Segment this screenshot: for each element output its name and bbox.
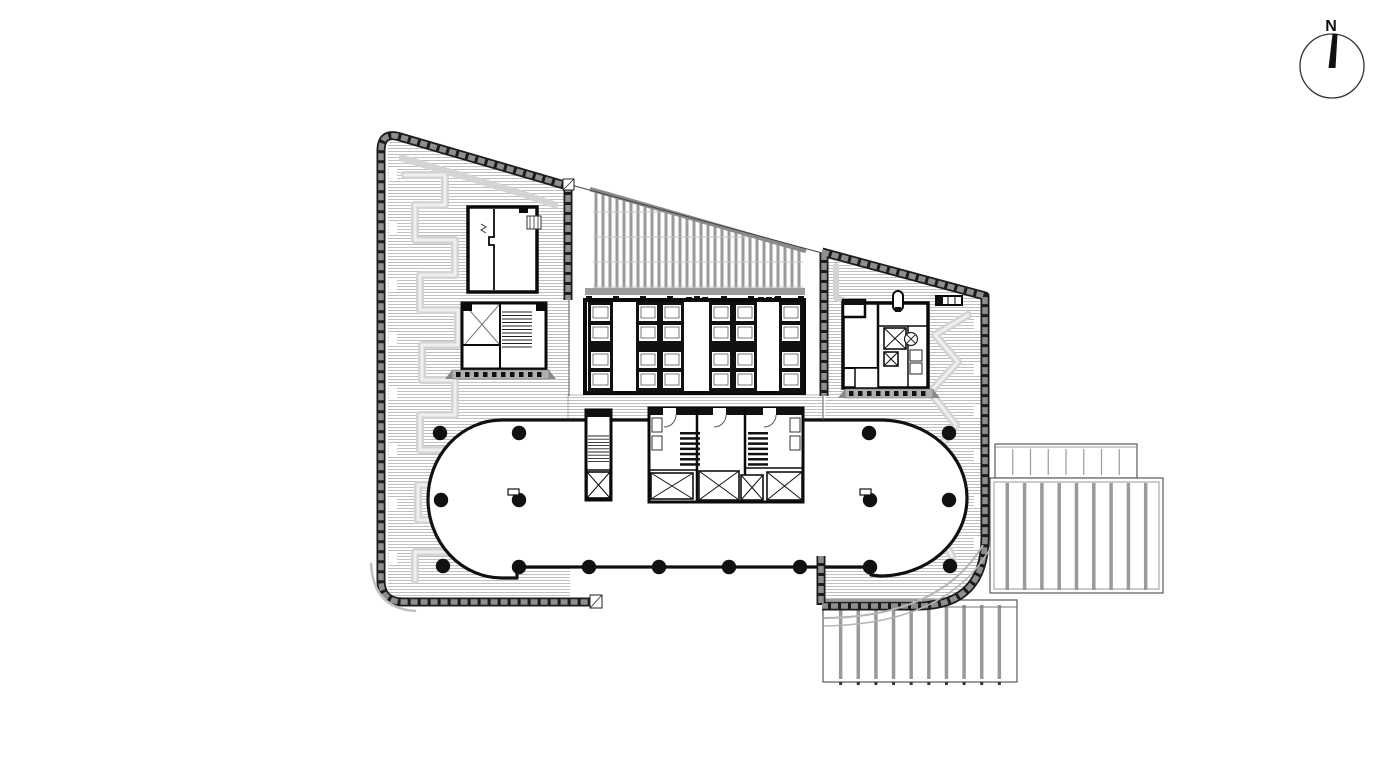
platform-tick — [894, 391, 899, 396]
stall-bar — [748, 432, 768, 435]
restroom-island — [649, 408, 803, 502]
elevator-car — [712, 325, 730, 341]
stall-bar — [748, 442, 768, 445]
platform-tick — [867, 391, 872, 396]
ladder-icon — [527, 216, 541, 229]
platform-tick — [492, 372, 497, 377]
elevator-car — [736, 305, 754, 321]
shaft-x-boxes — [651, 471, 802, 500]
elevator-car — [639, 372, 657, 388]
column-dot — [512, 560, 526, 574]
elevator-core — [585, 300, 804, 393]
elevator-car — [736, 352, 754, 368]
elevator-car — [782, 372, 800, 388]
terrace-tick — [980, 682, 983, 685]
elevator-car — [639, 325, 657, 341]
platform-tick — [849, 391, 854, 396]
duct-capsule — [893, 291, 903, 312]
platform-tick — [876, 391, 881, 396]
wall-notch — [389, 443, 397, 455]
entry-platform — [445, 370, 556, 379]
stall-bar — [748, 463, 768, 466]
elevator-car — [712, 372, 730, 388]
platform-tick — [474, 372, 479, 377]
platform-tick — [885, 391, 890, 396]
wall-notch — [389, 168, 397, 180]
stall-bar — [680, 437, 700, 440]
terrace-tick — [927, 682, 930, 685]
machine-room — [468, 207, 541, 292]
floor-plan-drawing: N — [0, 0, 1391, 765]
stall-bar — [680, 463, 700, 466]
column-dot — [943, 559, 957, 573]
platform-tick — [483, 372, 488, 377]
platform-tick — [510, 372, 515, 377]
elevator-car — [663, 352, 681, 368]
floor-plan-page: N — [0, 0, 1391, 765]
column-dot — [652, 560, 666, 574]
terrace-tick — [910, 682, 913, 685]
platform-tick — [921, 391, 926, 396]
elevator-car — [639, 305, 657, 321]
elevator-car — [663, 305, 681, 321]
terrace-bottom — [823, 600, 1017, 682]
platform-tick — [456, 372, 461, 377]
north-arrow: N — [1300, 18, 1364, 98]
rooftop-unit — [936, 296, 962, 305]
stall-bar — [680, 458, 700, 461]
elevator-car — [663, 325, 681, 341]
platform-tick — [528, 372, 533, 377]
floor-marker — [508, 489, 519, 495]
platform-tick — [537, 372, 542, 377]
terrace-tick — [963, 682, 966, 685]
elevator-car — [663, 372, 681, 388]
elevator-car — [782, 325, 800, 341]
elevator-car — [591, 305, 610, 321]
elevator-car — [782, 352, 800, 368]
stall-bar — [680, 448, 700, 451]
elevator-car — [782, 305, 800, 321]
floor-marker — [860, 489, 871, 495]
elevator-car — [736, 372, 754, 388]
stall-bar — [748, 453, 768, 456]
column-dot — [862, 426, 876, 440]
terrace-tick — [857, 682, 860, 685]
stall-bar — [748, 437, 768, 440]
elevator-car — [639, 352, 657, 368]
column-dot — [512, 426, 526, 440]
wall-notch — [389, 278, 397, 290]
terrace-tick — [874, 682, 877, 685]
platform-tick — [465, 372, 470, 377]
stall-bar — [680, 442, 700, 445]
elevator-car — [591, 372, 610, 388]
stair-island — [586, 410, 611, 500]
platform-tick — [519, 372, 524, 377]
terrace-tick — [839, 682, 842, 685]
elevator-car — [712, 352, 730, 368]
platform-tick — [501, 372, 506, 377]
elevator-car — [736, 325, 754, 341]
elevator-car — [591, 325, 610, 341]
column-dot — [863, 560, 877, 574]
platform-tick — [858, 391, 863, 396]
column-dot — [436, 559, 450, 573]
left-stair-room — [445, 303, 556, 379]
column-dot — [942, 493, 956, 507]
platform-tick — [903, 391, 908, 396]
wall-notch — [389, 223, 397, 235]
entry-platform — [838, 389, 940, 398]
column-dot — [793, 560, 807, 574]
wall-notch — [389, 388, 397, 400]
elevator-car — [712, 305, 730, 321]
stall-bar — [680, 432, 700, 435]
north-label: N — [1325, 18, 1337, 35]
fan-symbol — [905, 333, 918, 346]
column-dot — [582, 560, 596, 574]
wall-notch — [389, 498, 397, 510]
core-top-band — [585, 288, 805, 295]
terrace-tick — [945, 682, 948, 685]
wall-notch — [389, 553, 397, 565]
column-dot — [434, 493, 448, 507]
terrace-tick — [998, 682, 1001, 685]
column-dot — [433, 426, 447, 440]
column-dot — [942, 426, 956, 440]
elevator-car — [591, 352, 610, 368]
platform-tick — [912, 391, 917, 396]
stall-bar — [680, 453, 700, 456]
shaft-x-box — [587, 472, 610, 498]
wall-notch — [389, 333, 397, 345]
glass-roof — [571, 185, 822, 303]
stall-bar — [748, 458, 768, 461]
stall-bar — [748, 448, 768, 451]
terrace-tick — [892, 682, 895, 685]
column-dot — [722, 560, 736, 574]
